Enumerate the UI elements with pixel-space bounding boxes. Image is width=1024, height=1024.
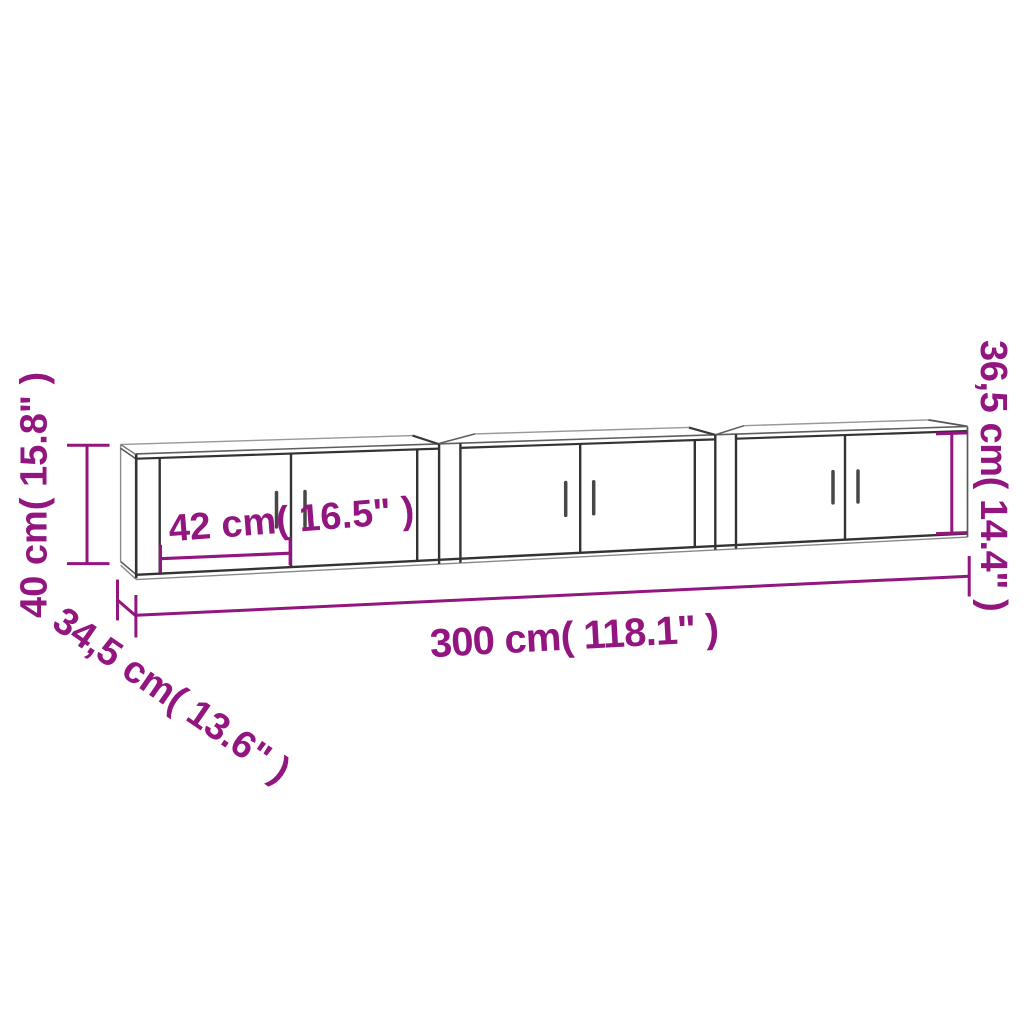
svg-text:40 cm( 15.8" ): 40 cm( 15.8" ) (14, 372, 56, 618)
svg-text:36,5 cm( 14.4" ): 36,5 cm( 14.4" ) (972, 340, 1014, 611)
svg-text:300 cm( 118.1" ): 300 cm( 118.1" ) (429, 607, 720, 667)
svg-text:34,5 cm( 13.6" ): 34,5 cm( 13.6" ) (45, 599, 298, 791)
